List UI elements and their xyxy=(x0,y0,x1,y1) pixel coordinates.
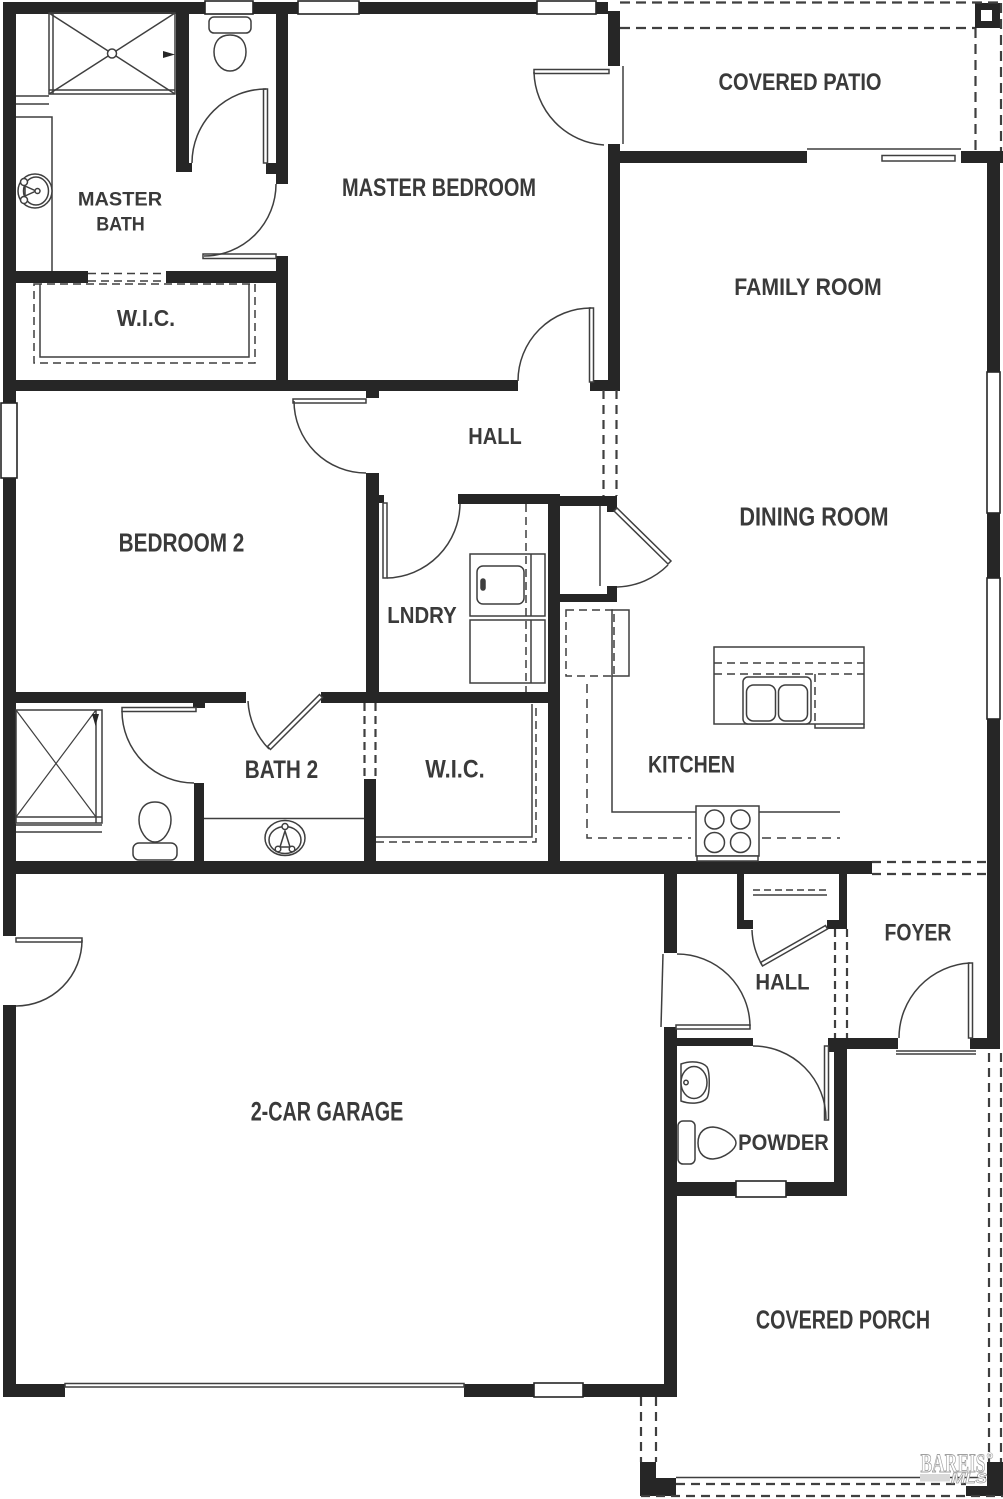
svg-text:W.I.C.: W.I.C. xyxy=(425,756,484,784)
svg-text:HALL: HALL xyxy=(755,970,809,995)
svg-text:MASTER BEDROOM: MASTER BEDROOM xyxy=(342,174,536,202)
svg-text:MASTER: MASTER xyxy=(78,190,163,211)
svg-text:2-CAR GARAGE: 2-CAR GARAGE xyxy=(251,1097,404,1127)
svg-text:BATH: BATH xyxy=(96,215,145,236)
svg-text:DINING ROOM: DINING ROOM xyxy=(739,504,888,532)
svg-text:BEDROOM 2: BEDROOM 2 xyxy=(119,528,245,558)
svg-text:FAMILY ROOM: FAMILY ROOM xyxy=(734,274,882,301)
svg-text:POWDER: POWDER xyxy=(738,1130,829,1155)
svg-text:COVERED PORCH: COVERED PORCH xyxy=(756,1305,930,1335)
svg-text:FOYER: FOYER xyxy=(885,920,952,947)
svg-text:®: ® xyxy=(987,1451,994,1461)
svg-text:MLS: MLS xyxy=(951,1471,987,1487)
svg-text:COVERED PATIO: COVERED PATIO xyxy=(719,69,882,96)
svg-text:W.I.C.: W.I.C. xyxy=(117,305,175,331)
svg-text:LNDRY: LNDRY xyxy=(387,602,456,628)
svg-text:KITCHEN: KITCHEN xyxy=(648,752,735,779)
svg-text:BATH 2: BATH 2 xyxy=(245,756,318,784)
svg-text:HALL: HALL xyxy=(468,423,521,449)
